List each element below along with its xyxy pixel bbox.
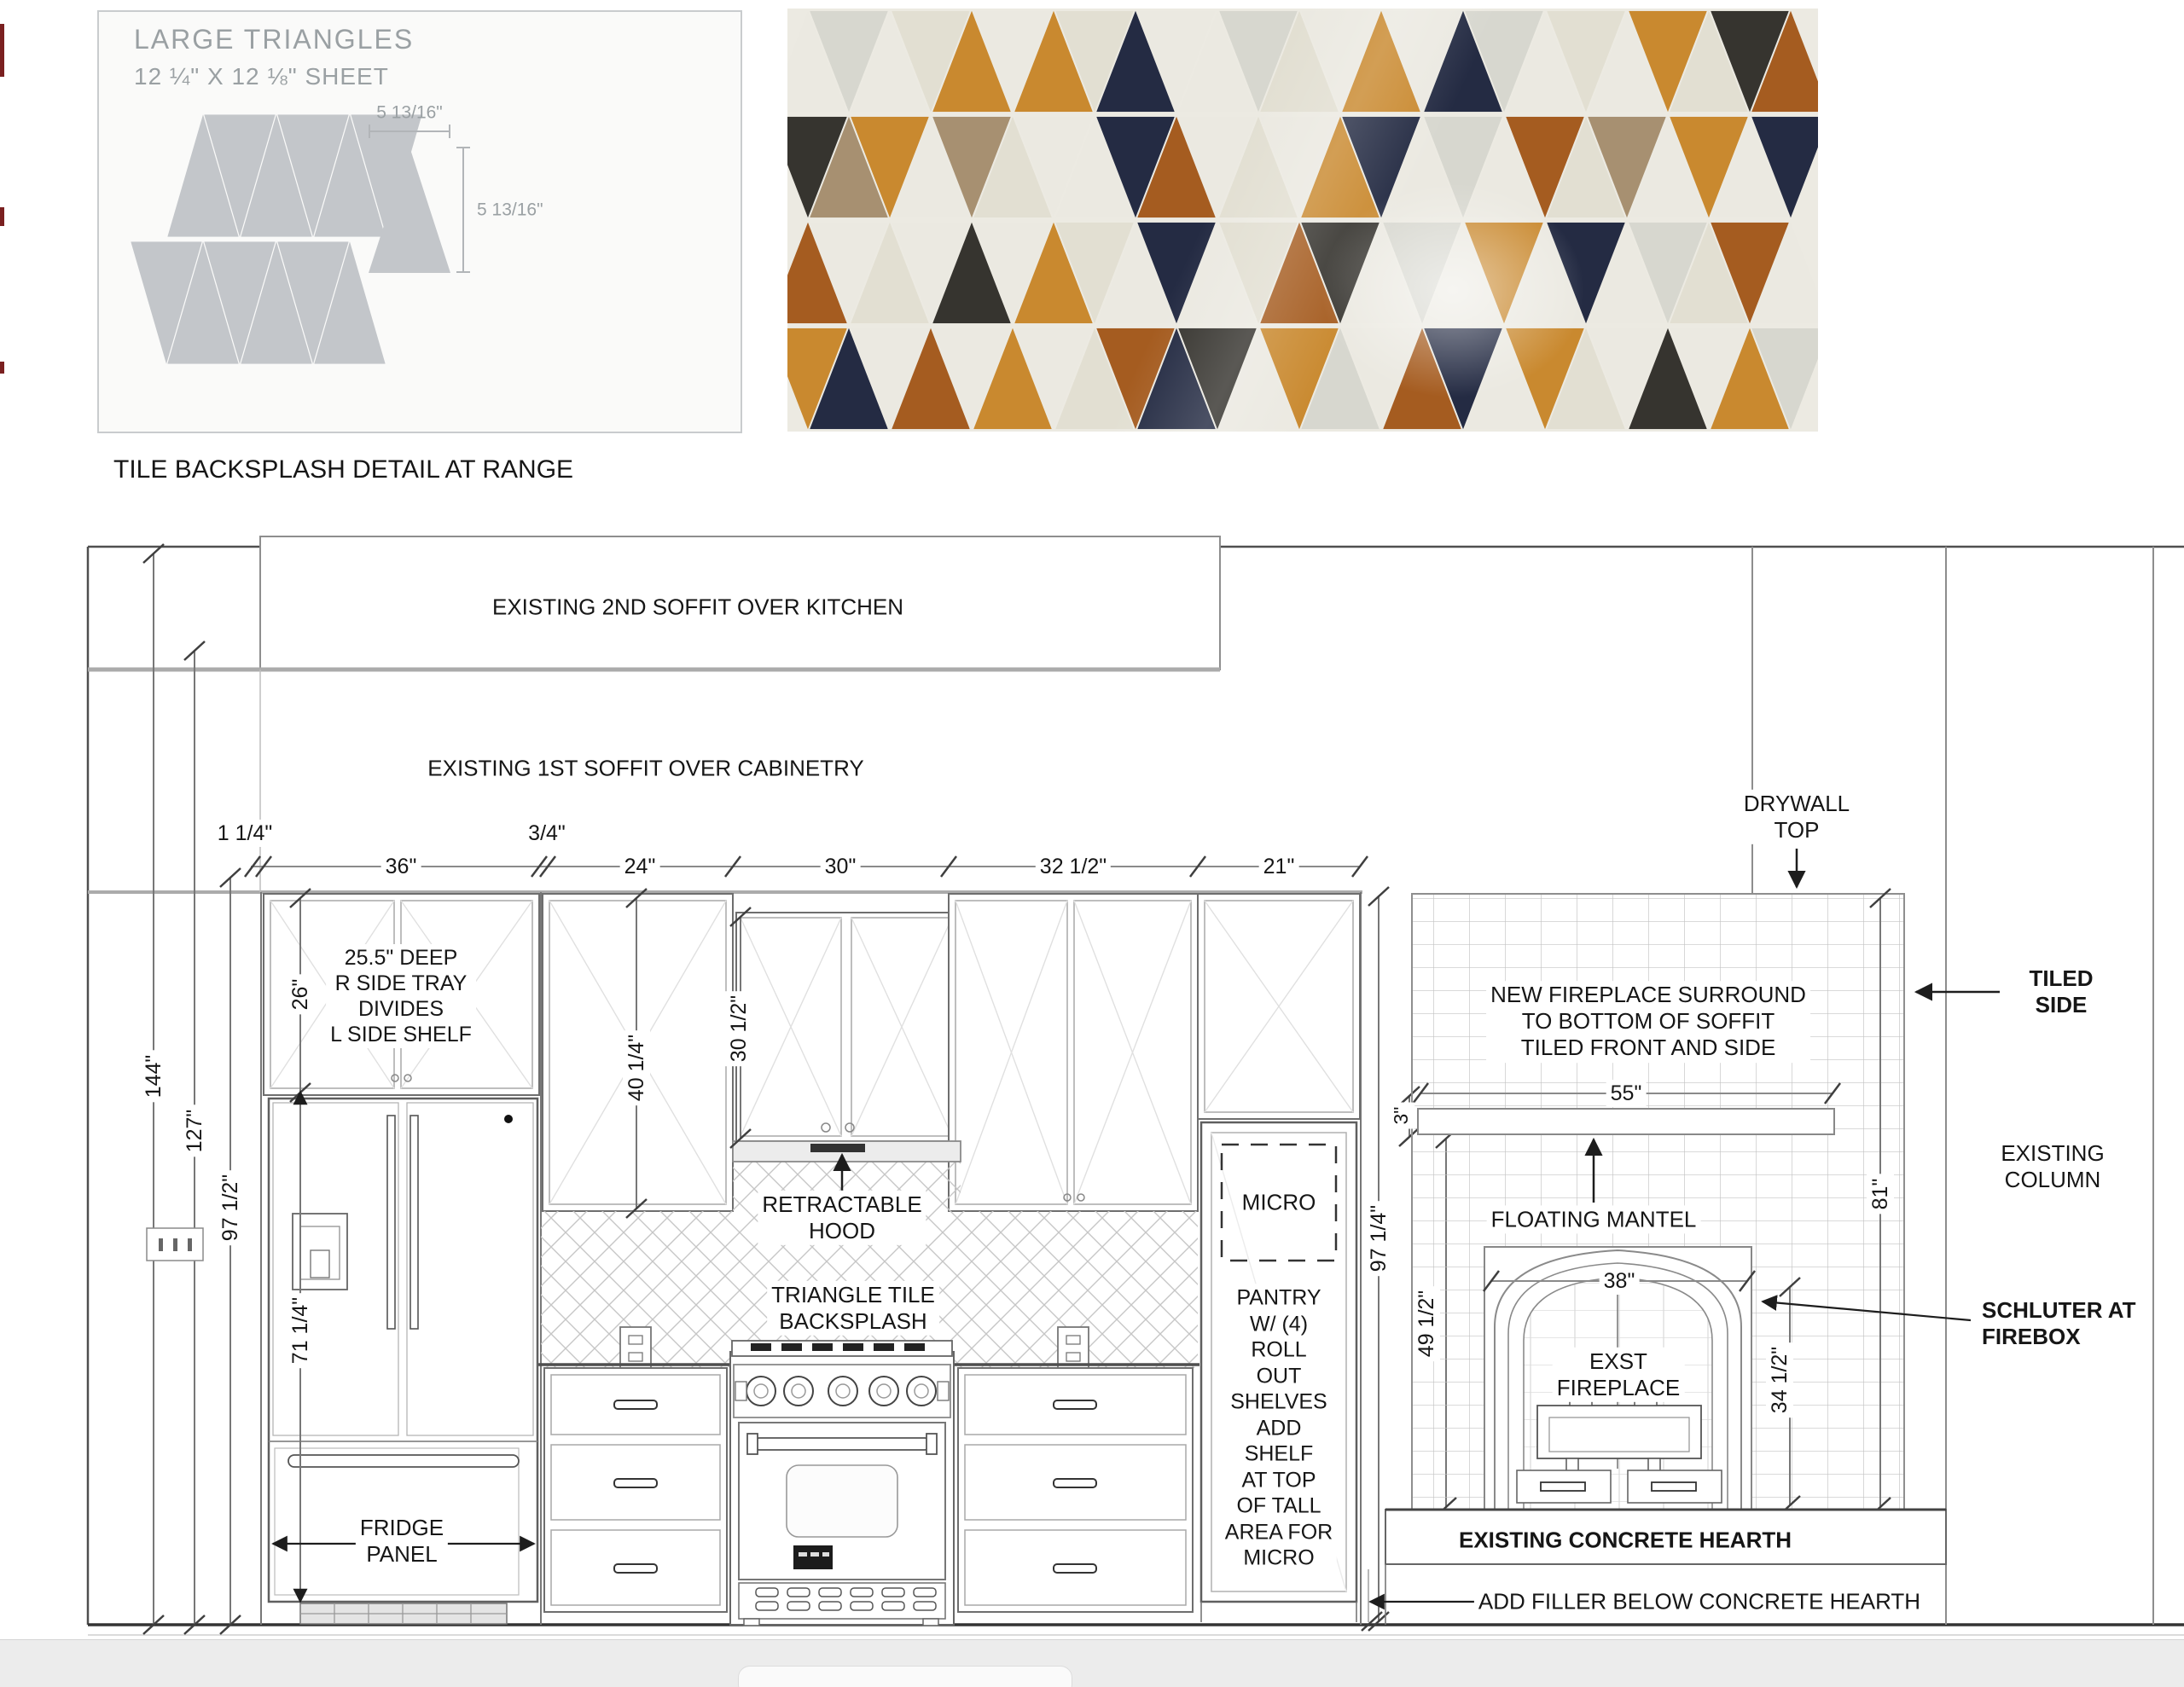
- footer-strip: [0, 1639, 2184, 1687]
- detail-caption: TILE BACKSPLASH DETAIL AT RANGE: [109, 454, 578, 486]
- label-schluter: SCHLUTER AT FIREBOX: [1978, 1296, 2140, 1351]
- edge-artifact: [0, 362, 4, 374]
- dim-30: 30": [821, 853, 861, 880]
- dim-144: 144": [140, 1051, 167, 1103]
- label-existing-column: EXISTING COLUMN: [1996, 1139, 2108, 1194]
- label-hearth: EXISTING CONCRETE HEARTH: [1455, 1526, 1796, 1554]
- dim-127: 127": [181, 1105, 208, 1157]
- scrollbar-handle[interactable]: [738, 1666, 1072, 1687]
- label-exst-fireplace: EXST FIREPLACE: [1553, 1348, 1685, 1402]
- dim-26: 26": [287, 975, 314, 1015]
- label-hood: RETRACTABLE HOOD: [758, 1191, 926, 1245]
- dim-38: 38": [1600, 1267, 1640, 1295]
- edge-artifact: [0, 207, 4, 226]
- label-tiled-side: TILED SIDE: [2000, 965, 2123, 1019]
- label-filler: ADD FILLER BELOW CONCRETE HEARTH: [1474, 1587, 1925, 1615]
- dim-71-1-4: 71 1/4": [287, 1293, 314, 1368]
- soffits: [88, 536, 1362, 892]
- dim-1-1-4: 1 1/4": [213, 820, 276, 847]
- label-drywall-top: DRYWALL TOP: [1740, 790, 1854, 844]
- dim-36: 36": [381, 853, 421, 880]
- label-soffit2: EXISTING 2ND SOFFIT OVER KITCHEN: [488, 593, 908, 621]
- dim-24: 24": [620, 853, 660, 880]
- range: [730, 1341, 954, 1626]
- dim-3: 3": [1389, 1103, 1414, 1129]
- label-fridge-panel: FRIDGE PANEL: [356, 1514, 448, 1568]
- dim-49-1-2: 49 1/2": [1413, 1286, 1440, 1361]
- drawing-sheet: LARGE TRIANGLES 12 ¼" X 12 ⅛" SHEET 5 13…: [0, 0, 2184, 1687]
- dim-3-4: 3/4": [524, 820, 570, 847]
- dim-21: 21": [1259, 853, 1299, 880]
- label-backsplash: TRIANGLE TILE BACKSPLASH: [767, 1281, 939, 1336]
- dim-32-1-2: 32 1/2": [1036, 853, 1111, 880]
- label-soffit1: EXISTING 1ST SOFFIT OVER CABINETRY: [423, 754, 868, 782]
- dim-55: 55": [1606, 1080, 1647, 1107]
- label-mantel: FLOATING MANTEL: [1487, 1205, 1701, 1233]
- dim-97-1-2: 97 1/2": [217, 1170, 244, 1245]
- dim-81: 81": [1867, 1174, 1894, 1215]
- edge-artifact: [0, 24, 4, 77]
- dim-97-1-4: 97 1/4": [1365, 1201, 1392, 1276]
- dim-34-1-2: 34 1/2": [1766, 1342, 1793, 1417]
- label-micro: MICRO: [1238, 1188, 1321, 1216]
- note-cabinet-tray: 25.5" DEEP R SIDE TRAY DIVIDES L SIDE SH…: [326, 944, 476, 1048]
- dim-40-1-4: 40 1/4": [623, 1030, 650, 1105]
- dim-30-1-2: 30 1/2": [725, 991, 752, 1066]
- note-surround: NEW FIREPLACE SURROUND TO BOTTOM OF SOFF…: [1486, 981, 1810, 1063]
- elevation-linework: [0, 0, 2184, 1687]
- note-pantry: PANTRY W/ (4) ROLL OUT SHELVES ADD SHELF…: [1221, 1284, 1337, 1572]
